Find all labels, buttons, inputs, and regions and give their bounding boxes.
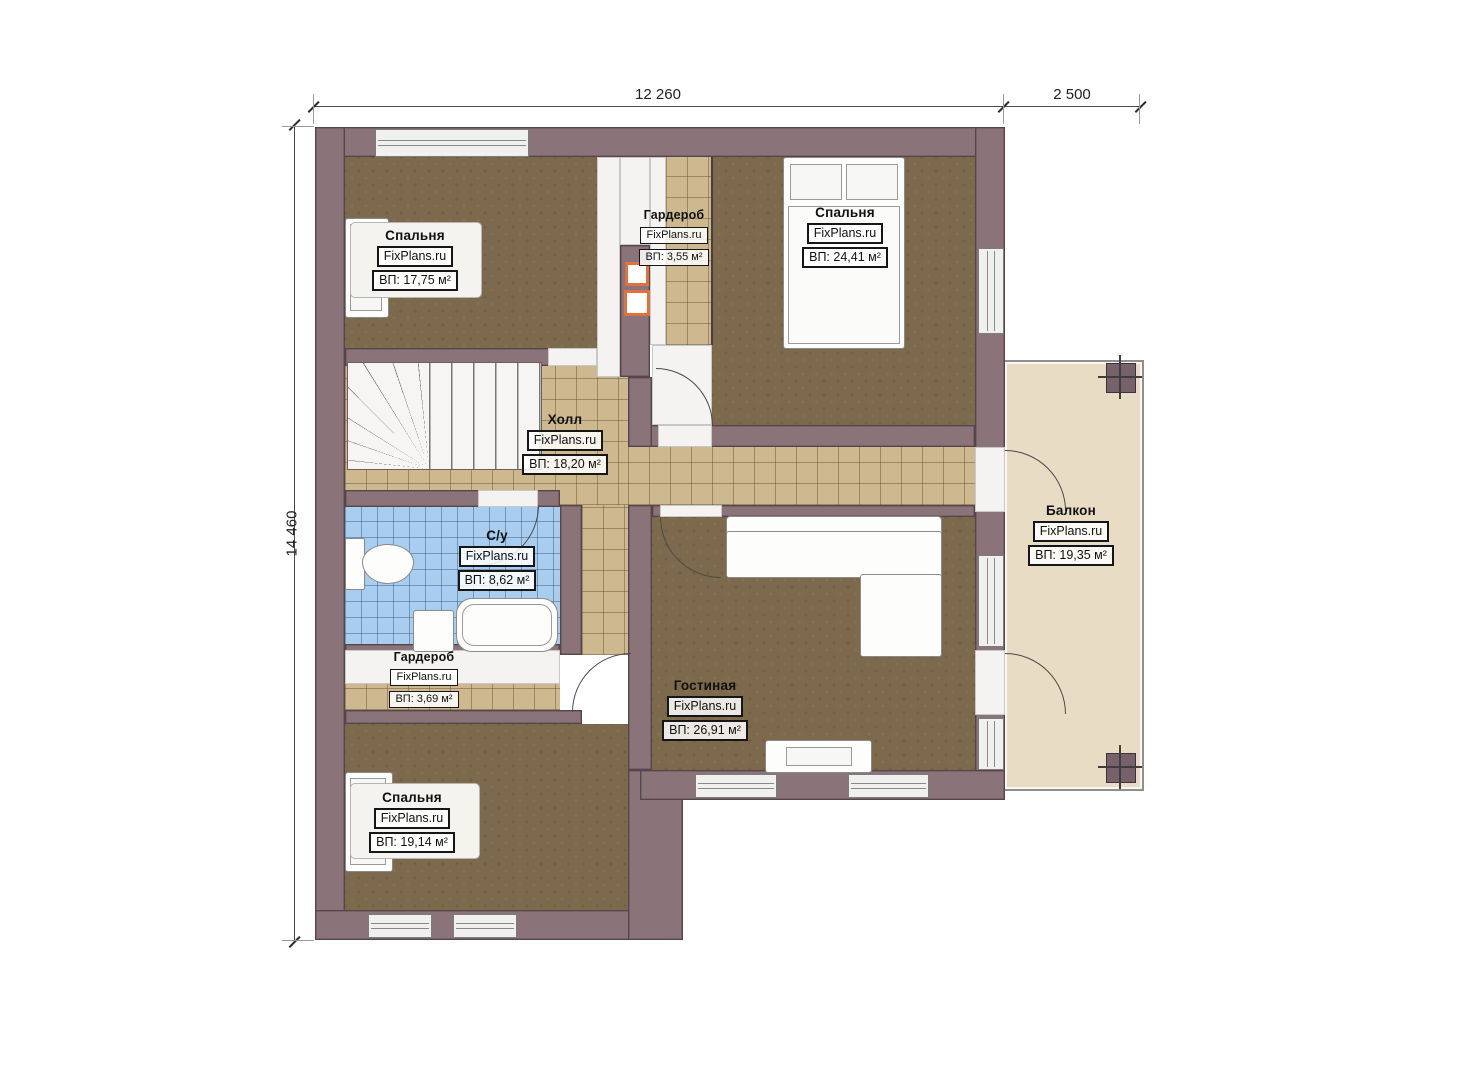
- room-name: Спальня: [342, 790, 482, 805]
- dimension-line-top-main: [313, 106, 1003, 107]
- balcony-post: [1106, 363, 1136, 393]
- room-name: Гардероб: [604, 208, 744, 222]
- witness-line: [1003, 94, 1004, 124]
- balcony-floor: [1003, 360, 1144, 791]
- room-label-wardrobe-top: Гардероб FixPlans.ru ВП: 3,55 м²: [604, 208, 744, 266]
- brand-badge: FixPlans.ru: [527, 430, 604, 451]
- niche: [597, 157, 620, 377]
- brand-badge: FixPlans.ru: [667, 696, 744, 717]
- room-label-bedroom-bottom: Спальня FixPlans.ru ВП: 19,14 м²: [342, 790, 482, 853]
- room-name: Холл: [495, 412, 635, 427]
- brand-badge: FixPlans.ru: [807, 223, 884, 244]
- room-area: ВП: 3,69 м²: [389, 691, 458, 708]
- dimension-height: 14 460: [284, 479, 301, 589]
- vent-shaft-icon: [624, 290, 650, 316]
- room-area: ВП: 19,14 м²: [369, 832, 455, 853]
- room-label-hall: Холл FixPlans.ru ВП: 18,20 м²: [495, 412, 635, 475]
- brand-badge: FixPlans.ru: [377, 246, 454, 267]
- sofa-chaise: [860, 574, 942, 657]
- witness-line: [282, 940, 314, 941]
- door-gap-bedroom2: [658, 425, 712, 447]
- room-label-bathroom: С/у FixPlans.ru ВП: 8,62 м²: [427, 528, 567, 591]
- room-area: ВП: 3,55 м²: [639, 249, 708, 266]
- room-area: ВП: 17,75 м²: [372, 270, 458, 291]
- room-name: Спальня: [345, 228, 485, 243]
- corridor-floor: [628, 447, 975, 505]
- balcony-post-cross: [1119, 745, 1121, 789]
- brand-badge: FixPlans.ru: [459, 546, 536, 567]
- wall-bedroom3-north: [345, 710, 582, 724]
- room-label-bedroom-top-left: Спальня FixPlans.ru ВП: 17,75 м²: [345, 228, 485, 291]
- room-label-living-room: Гостиная FixPlans.ru ВП: 26,91 м²: [635, 678, 775, 741]
- floor-plan: 12 260 2 500 14 460 Спальня FixPlans.ru …: [0, 0, 1473, 1080]
- window-bottom-living-right: [848, 774, 929, 798]
- dimension-width-main: 12 260: [558, 86, 758, 103]
- window-bottom-bedroom3-right: [453, 914, 517, 938]
- brand-badge: FixPlans.ru: [390, 669, 457, 686]
- door-gap-bedroom1: [548, 348, 597, 366]
- room-name: Балкон: [1001, 503, 1141, 518]
- window-bottom-bedroom3-left: [368, 914, 432, 938]
- room-name: Спальня: [775, 205, 915, 220]
- dimension-line-top-balcony: [1003, 106, 1140, 107]
- brand-badge: FixPlans.ru: [374, 808, 451, 829]
- balcony-post-cross: [1119, 355, 1121, 399]
- washbasin-icon: [413, 610, 454, 652]
- passage-floor: [582, 505, 630, 655]
- tv-stand-icon: [765, 740, 872, 773]
- window-right-living-upper: [978, 555, 1004, 647]
- window-top: [375, 129, 529, 157]
- room-name: С/у: [427, 528, 567, 543]
- door-gap-living: [660, 505, 722, 517]
- room-label-bedroom-top-right: Спальня FixPlans.ru ВП: 24,41 м²: [775, 205, 915, 268]
- witness-line: [313, 94, 314, 124]
- stairs-winders: [348, 363, 429, 469]
- room-area: ВП: 8,62 м²: [458, 570, 537, 591]
- wall-exterior-left: [315, 127, 345, 940]
- brand-badge: FixPlans.ru: [640, 227, 707, 244]
- window-right-bedroom2: [978, 248, 1004, 334]
- witness-line: [282, 126, 314, 127]
- dimension-width-balcony: 2 500: [1008, 86, 1136, 103]
- room-label-wardrobe-lower: Гардероб FixPlans.ru ВП: 3,69 м²: [354, 650, 494, 708]
- window-bottom-living-left: [695, 774, 777, 798]
- bathtub-icon: [456, 598, 558, 652]
- room-area: ВП: 26,91 м²: [662, 720, 748, 741]
- door-gap-balcony-south: [975, 650, 1005, 715]
- sofa-seat: [726, 531, 942, 578]
- door-arc-bedroom3: [572, 653, 631, 712]
- balcony-post: [1106, 753, 1136, 783]
- witness-line: [1139, 94, 1140, 124]
- room-name: Гостиная: [635, 678, 775, 693]
- room-area: ВП: 19,35 м²: [1028, 545, 1114, 566]
- room-area: ВП: 18,20 м²: [522, 454, 608, 475]
- room-name: Гардероб: [354, 650, 494, 664]
- room-area: ВП: 24,41 м²: [802, 247, 888, 268]
- brand-badge: FixPlans.ru: [1033, 521, 1110, 542]
- room-label-balcony: Балкон FixPlans.ru ВП: 19,35 м²: [1001, 503, 1141, 566]
- window-right-living-lower: [978, 718, 1004, 770]
